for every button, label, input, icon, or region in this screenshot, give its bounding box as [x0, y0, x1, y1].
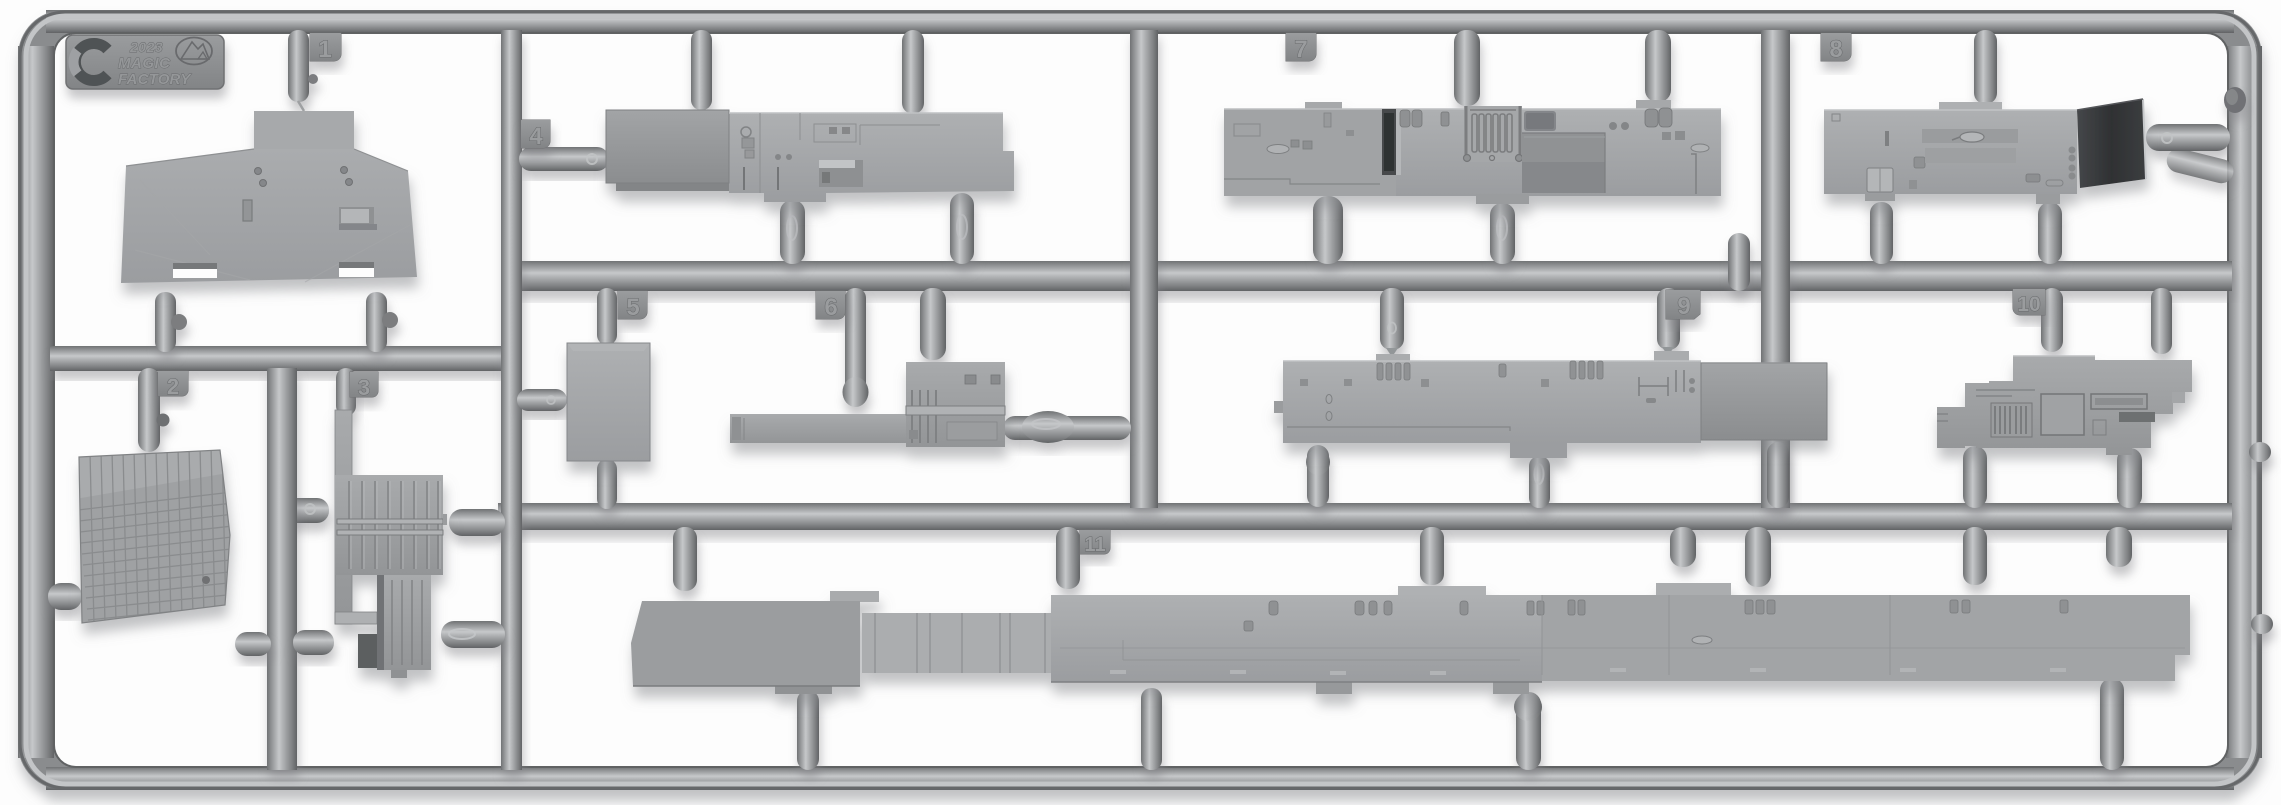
svg-text:FACTORY: FACTORY: [118, 71, 192, 88]
svg-text:4: 4: [529, 123, 543, 150]
svg-text:8: 8: [1829, 36, 1842, 63]
svg-text:MAGIC: MAGIC: [118, 55, 171, 72]
svg-text:7: 7: [1294, 36, 1307, 63]
svg-text:2: 2: [167, 374, 179, 399]
svg-text:10: 10: [2017, 293, 2040, 316]
svg-text:6: 6: [824, 294, 837, 321]
svg-text:11: 11: [1084, 534, 1105, 556]
svg-text:3: 3: [358, 375, 370, 400]
svg-text:2023: 2023: [129, 39, 163, 55]
svg-text:5: 5: [626, 294, 639, 321]
svg-text:1: 1: [318, 36, 331, 63]
svg-text:9: 9: [1677, 293, 1690, 320]
